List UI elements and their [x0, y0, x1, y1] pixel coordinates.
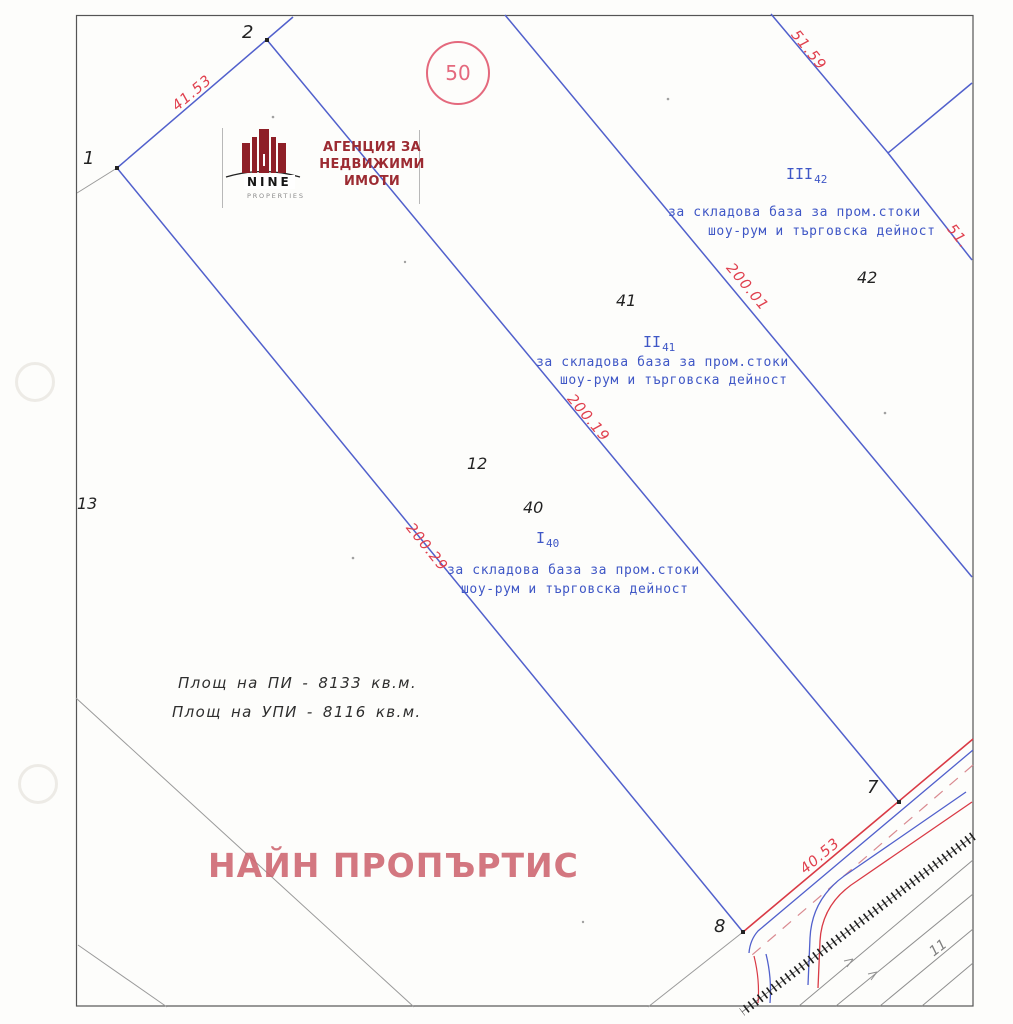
area-text-pi: Площ на ПИ - 8133 кв.м. [178, 676, 417, 691]
logo-agency-line2: НЕДВИЖИМИ ИМОТИ [306, 156, 438, 190]
designation-40-line2: шоу-рум и търговска дейност [461, 583, 689, 596]
gray-corner-line [78, 945, 167, 1007]
designation-42-line1: за складова база за пром.стоки [668, 206, 921, 219]
plot-label-ii41: II41 [643, 335, 674, 350]
cadastral-number-42: 42 [857, 270, 877, 286]
point-label-1: 1 [83, 150, 94, 168]
logo-brand-text: NINE [244, 175, 295, 189]
scanned-cadastral-plan: 50 NINE PROPERTIES АГЕНЦИЯ ЗА НЕДВИЖИМИ … [0, 0, 1013, 1024]
sheet-number-stamp: 50 [426, 41, 490, 105]
binder-hole [18, 764, 58, 804]
designation-41-line1: за складова база за пром.стоки [536, 356, 789, 369]
binder-hole [15, 362, 55, 402]
designation-40-line1: за складова база за пром.стоки [447, 564, 700, 577]
area-text-upi: Площ на УПИ - 8116 кв.м. [172, 705, 422, 720]
cadastral-number-13: 13 [77, 496, 97, 512]
sheet-number: 50 [445, 61, 470, 85]
logo-left-rule [222, 128, 223, 208]
survey-point-markers [115, 38, 901, 934]
boundary-plot-divider [505, 15, 972, 577]
point-label-2: 2 [242, 24, 253, 42]
logo-brand-subtext: PROPERTIES [247, 192, 305, 200]
point-label-7: 7 [867, 779, 878, 797]
gray-tie-line [77, 168, 117, 193]
plot-label-i40: I40 [536, 531, 558, 546]
nine-buildings-icon [240, 128, 286, 174]
point-label-8: 8 [714, 918, 725, 936]
watermark-text: НАЙН ПРОПЪРТИС [208, 849, 579, 882]
road-far-edge-blue [808, 792, 966, 985]
logo-agency-line1: АГЕНЦИЯ ЗА [306, 139, 438, 156]
cadastral-number-41: 41 [616, 293, 636, 309]
gray-boundary-continuation [648, 932, 743, 1007]
cadastral-number-40: 40 [523, 500, 543, 516]
direction-arrow [844, 959, 853, 967]
adjacent-road-lines [799, 860, 973, 1006]
street-regulation-line [743, 739, 973, 932]
street-edge-blue [749, 750, 973, 953]
cadastral-number-12: 12 [467, 456, 487, 472]
culvert-blue [766, 954, 771, 1003]
designation-41-line2: шоу-рум и търговска дейност [560, 374, 788, 387]
logo-agency-text: АГЕНЦИЯ ЗА НЕДВИЖИМИ ИМОТИ [306, 139, 438, 190]
scan-specks [272, 98, 887, 924]
designation-42-line2: шоу-рум и търговска дейност [708, 225, 936, 238]
plot-label-iii42: III42 [786, 167, 826, 182]
